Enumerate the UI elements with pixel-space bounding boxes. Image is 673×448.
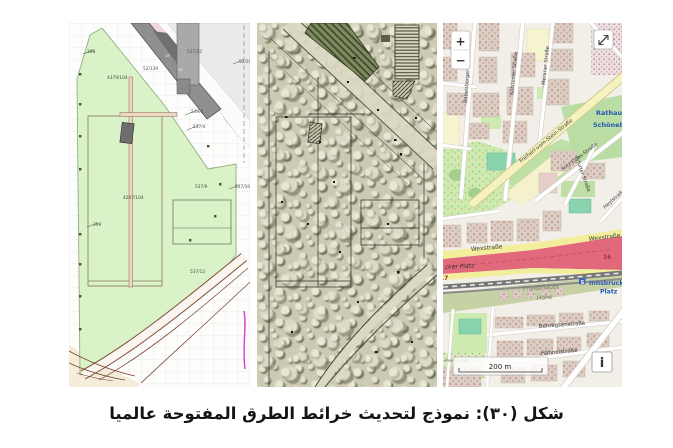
figure-page: 398 4379/104 52/139 537/22 52/20 539/8 5… (0, 0, 673, 448)
building-number: 18 (165, 54, 169, 58)
station-label: Rathaus (596, 109, 622, 117)
parcel-label: 398 (87, 49, 95, 55)
road-ref: 17 (443, 275, 448, 282)
info-icon: i (600, 356, 604, 371)
figure-caption: شكل (٣٠): نموذج لتحديث خرائط الطرق المفت… (0, 404, 673, 423)
share-button[interactable] (594, 30, 613, 49)
road-ref: 16 (603, 254, 611, 261)
building-number: 16 (178, 68, 182, 72)
station-label: Platz (600, 289, 618, 296)
parcel-label: 52/20 (239, 59, 250, 65)
sbahn-letter: S (581, 280, 585, 286)
osm-map-panel[interactable]: Babelsberger Straße Kufsteiner Straße Me… (443, 23, 622, 387)
zoom-control[interactable]: + − (451, 31, 470, 69)
parcel-label: 537/12 (190, 269, 205, 275)
place-label: Höhe (537, 294, 553, 302)
cadastral-map-panel: 398 4379/104 52/139 537/22 52/20 539/8 5… (69, 23, 250, 387)
parcel-label: 537/4 (193, 124, 206, 130)
path-horizontal (120, 113, 177, 117)
parcel-label: 539/8 (191, 109, 204, 115)
small-building (177, 79, 190, 94)
dark-building (120, 122, 134, 143)
zoom-in-button[interactable]: + (455, 35, 465, 49)
scale-bar: 200 m (453, 357, 548, 375)
parcel-label: 537/9 (195, 184, 208, 190)
hatched-small-building (308, 122, 322, 143)
hatched-building (395, 25, 419, 79)
magenta-boundary (244, 311, 245, 369)
parcel-label: 4379/104 (107, 75, 128, 81)
hillshade-map-panel (257, 23, 437, 387)
station-label: Schöneberg (593, 121, 622, 129)
dark-roof (381, 35, 390, 42)
parcel-label: 537/22 (187, 49, 202, 55)
parcel-label: 537/10 (235, 184, 250, 190)
parcel-label: 399 (93, 222, 101, 228)
station-label: Innsbrucker (589, 280, 622, 287)
info-button[interactable]: i (592, 352, 612, 372)
parcel-label: 4267/104 (123, 195, 144, 201)
zoom-out-button[interactable]: − (455, 54, 465, 68)
path-vertical (129, 77, 133, 287)
parcel-label: 52/139 (143, 66, 158, 72)
scale-label: 200 m (489, 363, 512, 371)
